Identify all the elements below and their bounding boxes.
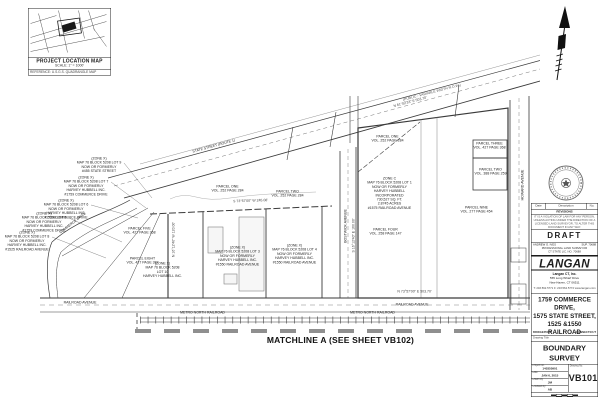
parcel-label: PARCEL TWO VOL. 252 PAGE 284 (270, 190, 305, 198)
road-label-railroad-avenue-east: RAILROAD AVENUE (392, 303, 432, 307)
matchline-label: MATCHLINE A (SEE SHEET VB102) (248, 335, 433, 345)
firm-contact: T: 203.562.5771 F: 203.562.5772 www.lang… (532, 287, 598, 291)
project-block: 1759 COMMERCE DRIVE, 1575 STATE STREET, … (532, 294, 598, 336)
annotation-note: (ZONE X) MAP 76 BLOCK 5208 LOT 7 NOW OR … (61, 176, 111, 197)
road-label-howard-avenue: HOWARD AVENUE (521, 165, 525, 205)
road-label-bostwick-avenue: BOSTWICK AVENUE (344, 206, 348, 246)
langan-logo: LANGAN (532, 256, 598, 271)
parcel-label: PARCEL NINE VOL. 277 PAGE 454 (459, 206, 494, 214)
survey-sheet: PROJECT LOCATION MAP SCALE: 1" = 1000' R… (0, 0, 600, 400)
parcel-label: PARCEL THREE VOL. 427 PAGE 368 (472, 142, 507, 150)
lot-label: (ZONE X) MAP 76 BLOCK 5208 LOT 10 HARVEY… (140, 262, 185, 279)
north-arrow-icon (548, 2, 576, 82)
firm-address-2: New Haven, CT 06511 (532, 281, 598, 285)
graphic-scale-icon (532, 393, 598, 398)
revision-no-header: No. (587, 204, 598, 210)
date-value: JAN 6, 2015 (533, 374, 568, 378)
bearing-label: N 73°57'00" E 503.70' (392, 290, 437, 294)
parcel-label: PARCEL FIVE VOL. 427 PAGE 368 (122, 227, 157, 235)
railroad-label-west: METRO NORTH RAILROAD (180, 311, 225, 315)
sheet-number: VB101 (569, 373, 598, 384)
drawing-title-label: Drawing Title (533, 337, 549, 340)
parcel-label: PARCEL TWO VOL. 388 PAGE 259 (473, 168, 508, 176)
project-name: 1759 COMMERCE DRIVE, 1575 STATE STREET, … (533, 296, 597, 336)
legal-note: IT IS A VIOLATION OF LAW FOR ANY PERSON,… (532, 215, 598, 230)
revision-description-header: Description (546, 204, 587, 210)
lot-label: (ZONE X) MAP 76 BLOCK 5208 LOT 3 NOW OR … (210, 246, 265, 267)
surveyor-license: CT STATE LIC. NO. 70688 (533, 251, 596, 255)
bearing-label: S 16°12'40" E 160.00' (352, 213, 356, 258)
parcel-label: PARCEL FOUR VOL. 258 PAGE 147 (368, 228, 403, 236)
parcel-label: PARCEL ONE VOL. 252 PAGE 284 (370, 135, 405, 143)
project-city: BRIDGEPORT (533, 331, 551, 334)
draft-stamp: DRAFT (532, 230, 598, 243)
parcel-label: PARCEL ONE VOL. 252 PAGE 284 (210, 185, 245, 193)
title-block: Date Description No. REVISIONS IT IS A V… (531, 203, 599, 398)
sheet-fields: Project No. 140355901 Date JAN 6, 2015 D… (532, 365, 598, 393)
checked-by-value: AB (533, 388, 568, 392)
surveyor-seal-icon (547, 164, 585, 202)
lot-label: ZONE C MAP 76 BLOCK 5208 LOT 1 NOW OR FO… (362, 177, 417, 211)
firm-info: Langan CT, Inc. 555 Long Wharf Drive New… (532, 271, 598, 294)
lot-label: (ZONE X) MAP 76 BLOCK 5208 LOT 4 NOW OR … (267, 244, 322, 265)
drawn-by-value: JM (533, 381, 568, 385)
bearing-label: N 16°12'40" W 120.00' (172, 217, 176, 262)
road-label-railroad-avenue-west: RAILROAD AVENUE (60, 301, 100, 305)
railroad-label-east: METRO NORTH RAILROAD (350, 311, 395, 315)
revision-date-header: Date (532, 204, 547, 210)
project-no-value: 140355901 (533, 367, 568, 371)
annotation-note: (ZONE X) MAP 76 BLOCK 5208 LOT 9 NOW OR … (74, 157, 124, 174)
annotation-note: (ZONE X) MAP 76 BLOCK 5208 LOT 5 NOW OR … (19, 212, 69, 233)
drawing-no-label: Drawing No. (569, 365, 598, 368)
drawing-title: BOUNDARY SURVEY (532, 342, 598, 365)
surveyor-block: ANDREW G. IVES SUP. 70688 PROFESSIONAL L… (532, 243, 598, 256)
annotation-note: (ZONE X) MAP 76 BLOCK 5208 LOT 8 NOW OR … (2, 231, 52, 252)
project-state: CONNECTICUT (576, 331, 596, 334)
